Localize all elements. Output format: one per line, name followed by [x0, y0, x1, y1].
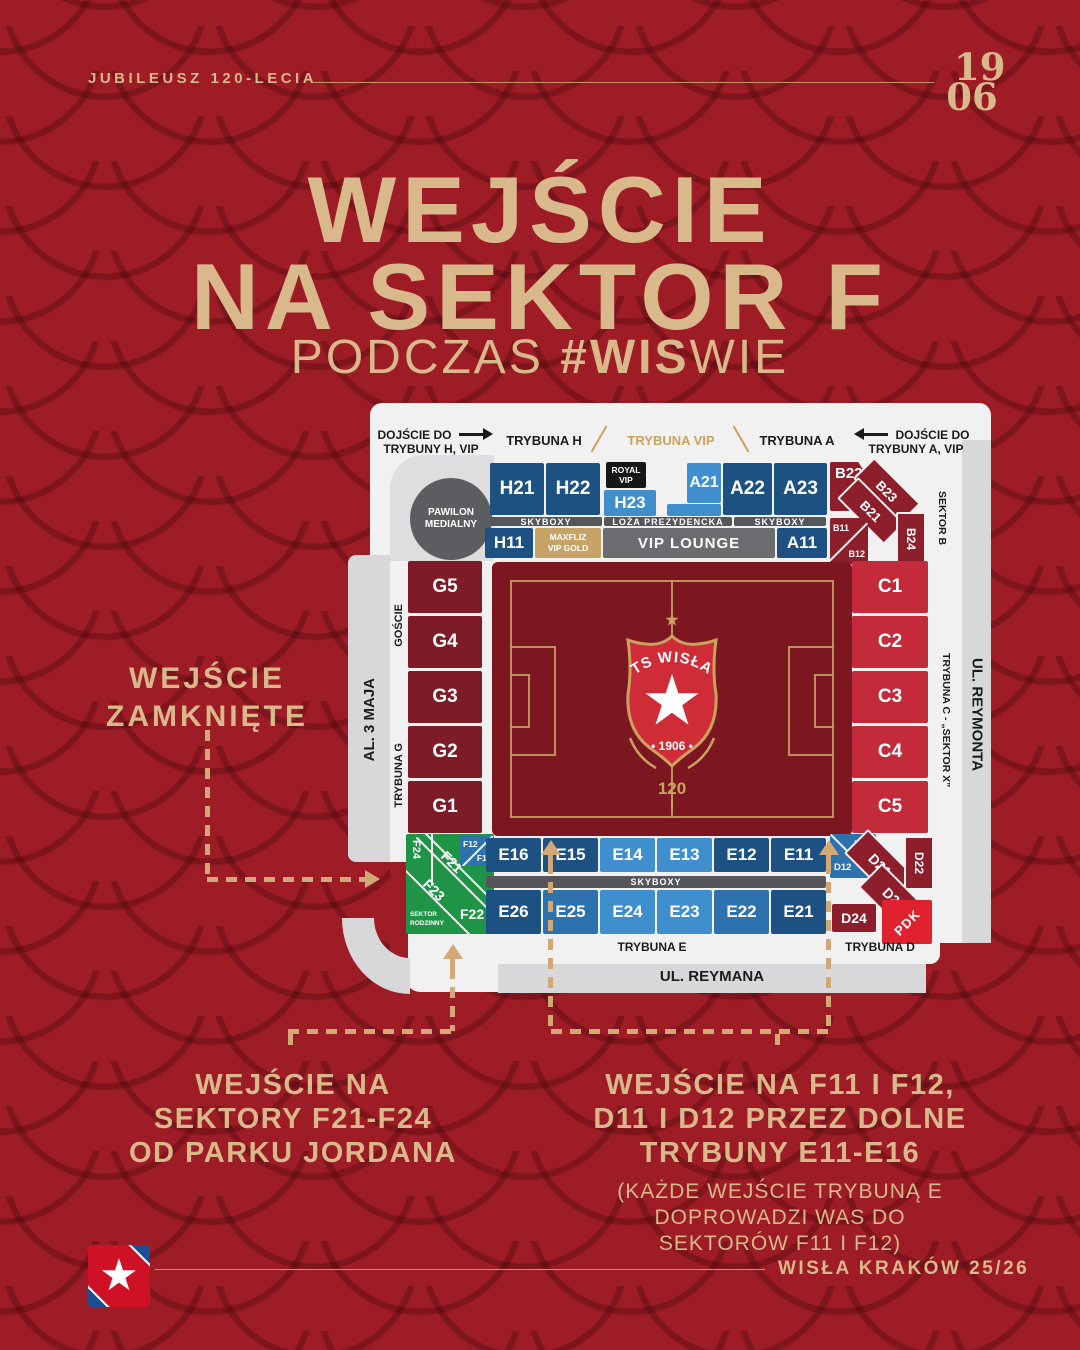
sektor-rodzinny-line2: RODZINNY [410, 920, 444, 928]
stand-e-label: TRYBUNA E [602, 940, 702, 954]
section-e11: E11 [771, 838, 826, 872]
flag-star-icon: ★ [99, 1254, 138, 1298]
section-d22: D22 [904, 836, 934, 890]
b11-label: B11 [833, 523, 849, 533]
e16-arrow-stem [548, 854, 553, 863]
section-g1: G1 [408, 781, 482, 833]
access-h-line2: TRYBUNY H, VIP [383, 442, 478, 456]
b12-label: B12 [848, 549, 865, 559]
br-note-line1: WEJŚCIE NA F11 I F12, [562, 1068, 998, 1102]
section-b11-b12: B11 B12 [830, 518, 868, 564]
section-h11: H11 [485, 528, 533, 558]
stadium-map: PAWILON MEDIALNY DOJŚCIE DO TRYBUNY H, V… [348, 400, 994, 1000]
section-e13: E13 [657, 838, 712, 872]
family-arrow-vertical [450, 968, 455, 1031]
header-divider [312, 82, 934, 83]
bl-note-line1: WEJŚCIE NA [118, 1068, 468, 1102]
royal-line1: ROYAL [612, 465, 641, 475]
sektor-rodzinny-label: SEKTOR RODZINNY [410, 911, 444, 928]
family-arrow-tick [288, 1034, 293, 1052]
section-e12: E12 [714, 838, 769, 872]
pawilon-medialny: PAWILON MEDIALNY [410, 478, 492, 560]
section-h21: H21 [490, 463, 544, 515]
br-note-sub: (KAŻDE WEJŚCIE TRYBUNĄ E DOPROWADZI WAS … [562, 1179, 998, 1258]
d11-arrow-head-icon [819, 840, 839, 855]
section-h23: H23 [604, 490, 656, 516]
crest-top-star-icon [665, 613, 678, 626]
pdk-label: PDK [891, 906, 923, 938]
section-royal-vip: ROYAL VIP [606, 462, 646, 488]
street-left-label: AL. 3 MAJA [358, 655, 380, 785]
section-g2: G2 [408, 726, 482, 778]
stand-h-label: TRYBUNA H [494, 433, 594, 448]
d11-arrow-vertical [826, 863, 831, 1031]
br-note-line3: TRYBUNY E11-E16 [562, 1136, 998, 1170]
section-maxfliz-vip-gold: MAXFLIZ VIP GOLD [535, 528, 601, 558]
sektor-b-label: SEKTOR B [934, 480, 950, 556]
br-note-sub3: SEKTORÓW F11 I F12) [562, 1231, 998, 1257]
e16-arrow-vertical [548, 863, 553, 1031]
street-bottom-label: UL. REYMANA [498, 968, 926, 985]
d12-label: D12 [834, 862, 851, 873]
arrow-left-icon [862, 433, 888, 436]
section-c1: C1 [852, 561, 928, 613]
br-note-sub1: (KAŻDE WEJŚCIE TRYBUNĄ E [562, 1179, 998, 1205]
pitch-goal-right [814, 674, 834, 728]
closed-note-line1: WEJŚCIE [57, 660, 357, 698]
stand-g-label: TRYBUNA G [390, 720, 408, 830]
wisla-flag-logo: ★ [88, 1245, 150, 1307]
e16-arrow-head-icon [541, 840, 561, 855]
closed-entrance-note: WEJŚCIE ZAMKNIĘTE [57, 660, 357, 735]
subtitle-prefix: PODCZAS [291, 331, 560, 384]
pdk-partner-box: PDK [882, 900, 932, 944]
goscie-text: GOŚCIE [393, 604, 405, 647]
access-trybuna-h: DOJŚCIE DO TRYBUNY H, VIP [368, 428, 494, 457]
street-right-text: UL. REYMONTA [969, 658, 986, 771]
d22-label: D22 [912, 852, 926, 874]
jubilee-label: JUBILEUSZ 120-LECIA [88, 70, 317, 87]
section-c2: C2 [852, 616, 928, 668]
southwest-ramp-arc [342, 916, 412, 994]
pawilon-line1: PAWILON [428, 507, 474, 520]
family-arrow-horizontal [288, 1029, 454, 1034]
stand-g-text: TRYBUNA G [393, 743, 405, 808]
section-g5: G5 [408, 561, 482, 613]
closed-arrow-head-icon [365, 870, 380, 888]
stand-d-label: TRYBUNA D [830, 940, 930, 954]
stand-vip-label: TRYBUNA VIP [612, 433, 730, 448]
section-a21: A21 [687, 463, 721, 503]
section-e21: E21 [771, 890, 826, 934]
section-f22: F22 [460, 906, 484, 922]
section-b24: B24 [896, 512, 926, 566]
section-g4: G4 [408, 616, 482, 668]
skyboxy-right-bar: SKYBOXY [734, 517, 826, 526]
crest-year: • 1906 • [651, 739, 693, 753]
loza-prezydencka-bar: LOŻA PREZYDENCKA [604, 517, 732, 526]
f12-label: F12 [463, 839, 478, 849]
bottom-right-note: WEJŚCIE NA F11 I F12, D11 I D12 PRZEZ DO… [562, 1068, 998, 1257]
section-vip-lounge: VIP LOUNGE [603, 528, 775, 558]
section-e24: E24 [600, 890, 655, 934]
bottom-left-note: WEJŚCIE NA SEKTORY F21-F24 OD PARKU JORD… [118, 1068, 468, 1171]
maxfliz-line2: VIP GOLD [548, 543, 588, 554]
section-e14: E14 [600, 838, 655, 872]
br-note-line2: D11 I D12 PRZEZ DOLNE [562, 1102, 998, 1136]
year-bottom: 06 [942, 82, 1002, 112]
section-f23: F23 [420, 876, 448, 904]
title-line1: WEJŚCIE [0, 163, 1080, 257]
stand-a-label: TRYBUNA A [744, 433, 850, 448]
arrow-right-icon [459, 433, 485, 436]
stadium-left-patch [370, 440, 392, 560]
sektor-b-text: SEKTOR B [936, 491, 948, 545]
access-h-line1: DOJŚCIE DO [377, 428, 451, 442]
family-arrow-head-icon [443, 944, 463, 959]
pitch-goal-left [510, 674, 530, 728]
goscie-label: GOŚCIE [390, 585, 408, 665]
section-e22: E22 [714, 890, 769, 934]
stand-c-label: TRYBUNA C - „SEKTOR X” [938, 640, 954, 800]
maxfliz-line1: MAXFLIZ [550, 532, 587, 543]
poster: JUBILEUSZ 120-LECIA 19 06 WEJŚCIE NA SEK… [0, 0, 1080, 1350]
section-c5: C5 [852, 781, 928, 833]
section-c3: C3 [852, 671, 928, 723]
closed-arrow-vertical [205, 730, 210, 880]
access-trybuna-a: DOJŚCIE DO TRYBUNY A, VIP [848, 428, 984, 457]
section-h22: H22 [546, 463, 600, 515]
section-c4: C4 [852, 726, 928, 778]
section-e16: E16 [486, 838, 541, 872]
section-a21-step [667, 504, 721, 516]
ed-arrow-tick [775, 1034, 780, 1050]
skyboxy-left-bar: SKYBOXY [490, 517, 602, 526]
footer-club-season: WISŁA KRAKÓW 25/26 [778, 1258, 1029, 1280]
footer-divider [155, 1269, 765, 1270]
section-e26: E26 [486, 890, 541, 934]
d11-arrow-stem [826, 854, 831, 863]
pawilon-line2: MEDIALNY [425, 519, 477, 532]
ed-arrow-horizontal [551, 1029, 831, 1034]
br-note-sub2: DOPROWADZI WAS DO [562, 1205, 998, 1231]
street-right-label: UL. REYMONTA [966, 640, 988, 790]
crest-120: 120 [658, 779, 686, 798]
access-a-line1: DOJŚCIE DO [895, 428, 969, 442]
section-a11: A11 [777, 528, 827, 558]
bl-note-line3: OD PARKU JORDANA [118, 1136, 468, 1170]
year-1906-logo: 19 06 [946, 52, 1002, 113]
section-f24: F24 [410, 840, 422, 859]
royal-line2: VIP [619, 475, 633, 485]
wisla-crest: TS WISŁA • 1906 • 120 [612, 610, 732, 810]
subtitle-suffix: WIE [690, 331, 790, 384]
title-subtitle: PODCZAS #WISWIE [0, 330, 1080, 385]
street-left-text: AL. 3 MAJA [361, 678, 378, 761]
subtitle-hashtag: #WIS [560, 331, 689, 384]
closed-arrow-horizontal [207, 877, 365, 882]
section-g3: G3 [408, 671, 482, 723]
bl-note-line2: SEKTORY F21-F24 [118, 1102, 468, 1136]
section-e23: E23 [657, 890, 712, 934]
stand-c-text: TRYBUNA C - „SEKTOR X” [940, 653, 952, 787]
section-a22: A22 [723, 463, 772, 515]
section-d24: D24 [832, 904, 876, 932]
section-a23: A23 [774, 463, 827, 515]
b24-label: B24 [904, 528, 918, 550]
family-arrow-stem [450, 958, 455, 968]
skyboxy-bottom-bar: SKYBOXY [486, 876, 826, 888]
access-a-line2: TRYBUNY A, VIP [869, 442, 964, 456]
sektor-rodzinny-line1: SEKTOR [410, 911, 444, 919]
